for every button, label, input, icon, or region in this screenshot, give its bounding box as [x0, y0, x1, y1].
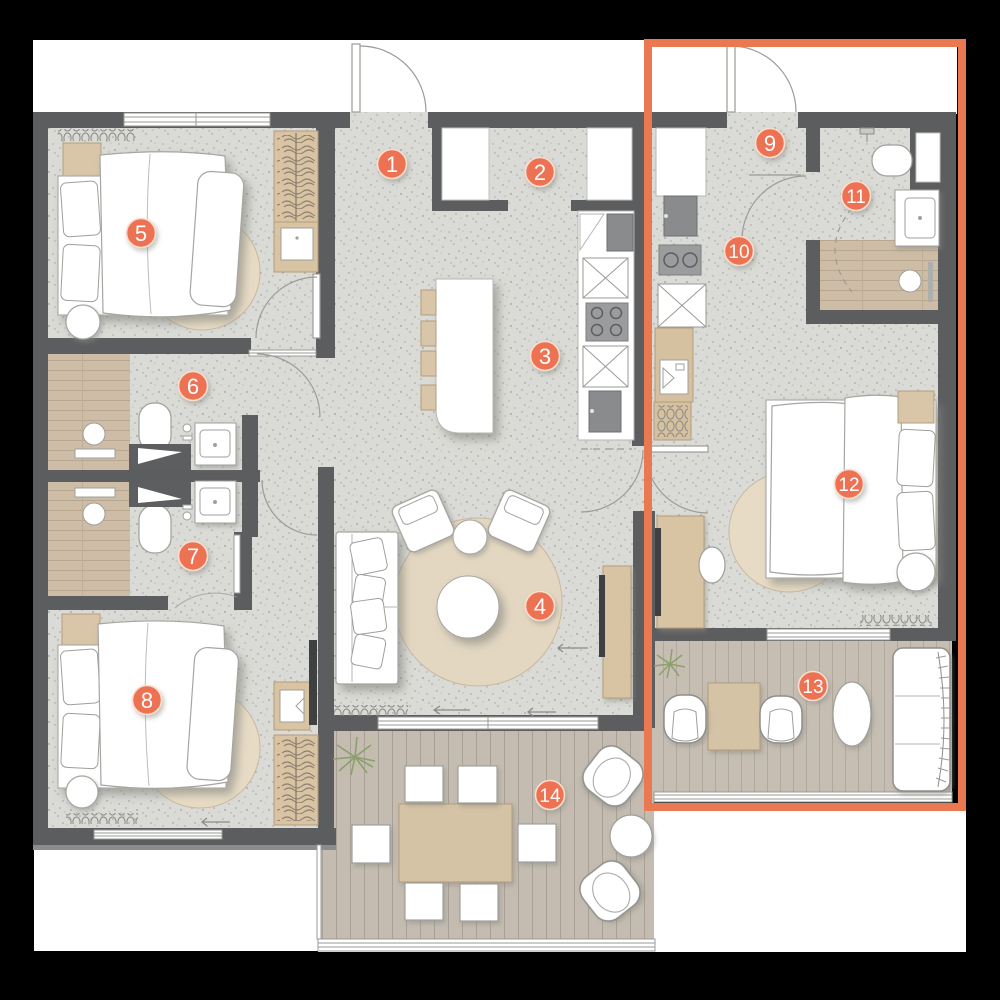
svg-text:5: 5: [135, 221, 147, 246]
svg-text:4: 4: [534, 594, 546, 619]
svg-text:3: 3: [539, 344, 551, 369]
svg-text:13: 13: [802, 677, 823, 698]
svg-text:2: 2: [534, 160, 546, 185]
svg-text:11: 11: [846, 187, 866, 208]
svg-text:8: 8: [141, 688, 153, 713]
svg-text:10: 10: [728, 242, 749, 263]
svg-text:9: 9: [764, 131, 776, 156]
svg-text:6: 6: [187, 374, 199, 399]
svg-text:14: 14: [539, 786, 561, 807]
svg-text:1: 1: [386, 152, 398, 177]
svg-text:7: 7: [187, 544, 199, 569]
svg-text:12: 12: [838, 475, 859, 496]
